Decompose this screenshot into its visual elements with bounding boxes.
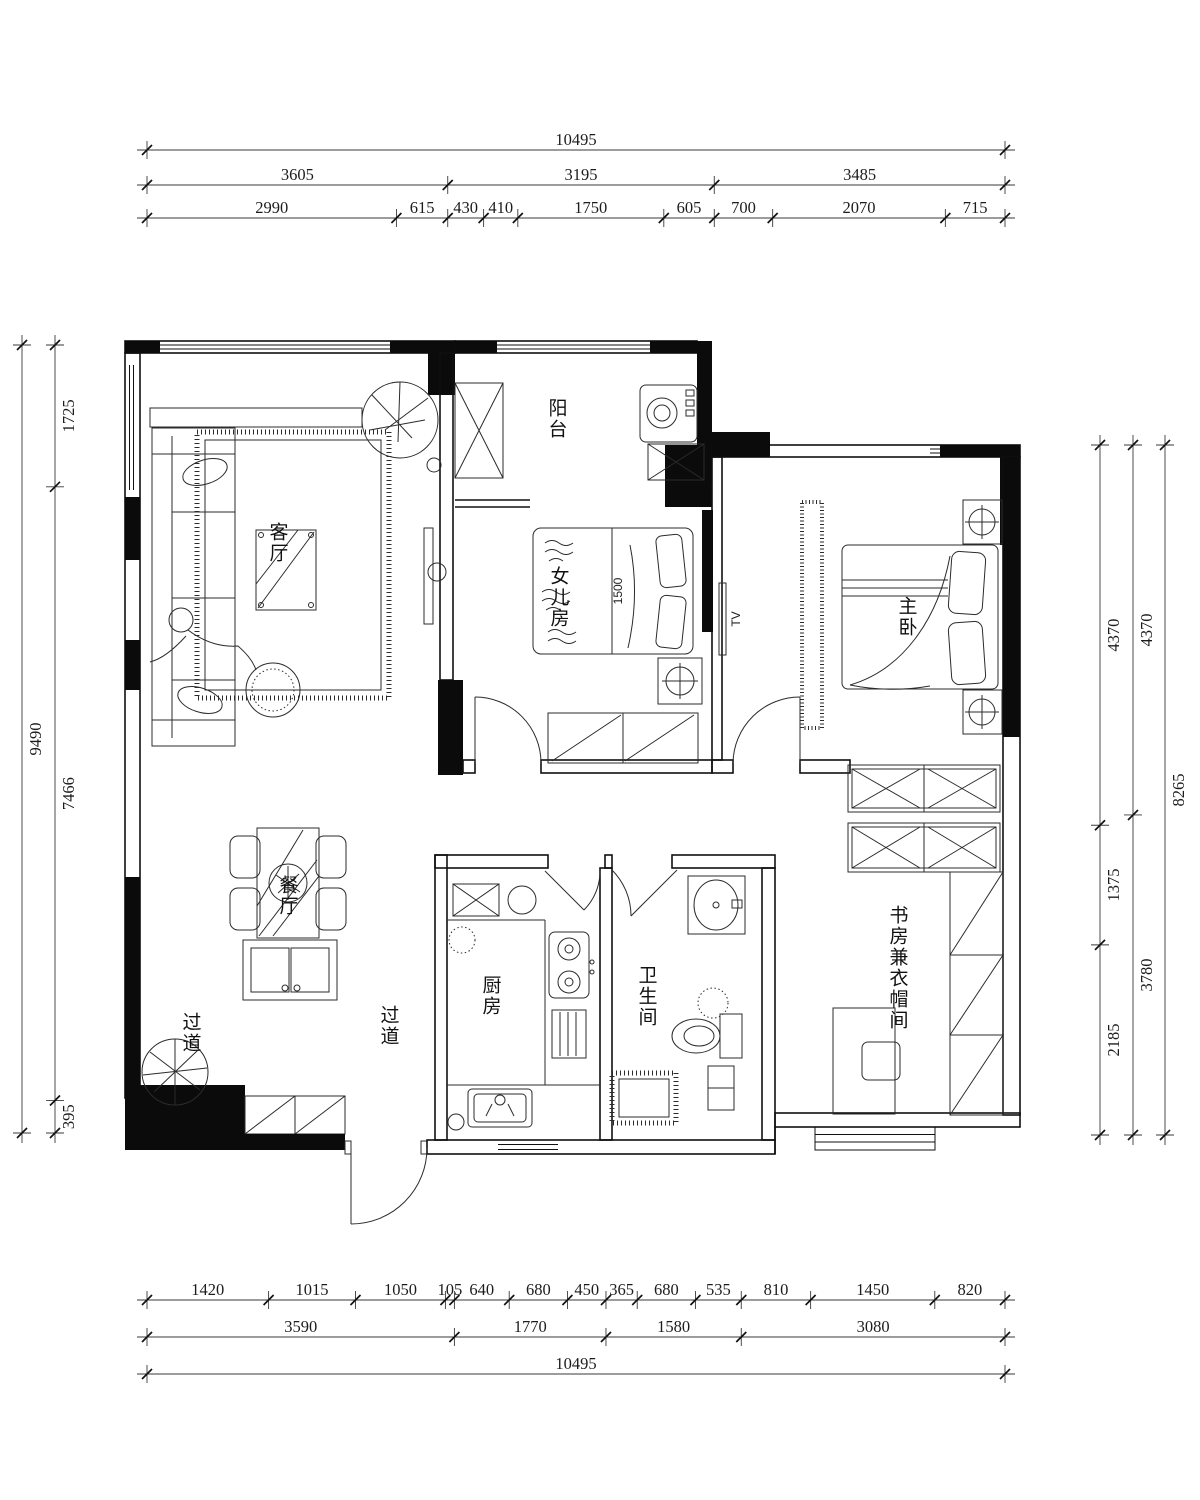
fridge (453, 884, 499, 916)
reading-person (150, 608, 256, 670)
study-furniture (833, 765, 1003, 1115)
svg-text:2990: 2990 (255, 198, 288, 217)
bath-cabinet (708, 1066, 734, 1110)
chair (230, 836, 260, 878)
tv-label: TV (729, 611, 743, 626)
shelf (150, 408, 362, 427)
room-label-living: 客厅 (267, 522, 289, 564)
svg-text:1580: 1580 (657, 1317, 690, 1336)
annotations: 1500 TV (611, 577, 743, 626)
room-label-kitchen: 厨房 (480, 975, 502, 1017)
svg-text:2070: 2070 (843, 198, 876, 217)
svg-text:1050: 1050 (384, 1280, 417, 1299)
room-label-master: 主卧 (896, 596, 917, 638)
study-right-closet (950, 872, 1003, 1115)
bathroom-furniture (612, 876, 745, 1123)
svg-text:8265: 8265 (1169, 774, 1188, 807)
living-room-furniture (150, 382, 446, 746)
room-label-balcony: 阳台 (546, 398, 567, 440)
svg-text:7466: 7466 (59, 777, 78, 810)
doors (351, 697, 800, 1224)
svg-text:9490: 9490 (26, 723, 45, 756)
svg-text:4370: 4370 (1104, 619, 1123, 652)
kitchen-door (545, 871, 600, 910)
svg-text:715: 715 (963, 198, 988, 217)
bath-sink (688, 876, 745, 934)
room-label-corridor-1: 过道 (180, 1012, 202, 1054)
shower (612, 1073, 676, 1123)
svg-text:820: 820 (958, 1280, 983, 1299)
room-label-corridor-2: 过道 (378, 1005, 400, 1047)
kitchen-sink (468, 1089, 532, 1127)
dim-top-total: 10495 (137, 130, 1015, 159)
master-nightstand-top (963, 500, 1002, 544)
svg-text:410: 410 (488, 198, 513, 217)
sideboard (243, 940, 337, 1000)
study-wardrobe-row1 (848, 765, 1000, 812)
master-nightstand-bottom (963, 690, 1002, 734)
chair (316, 888, 346, 930)
dim-left-inner: 17257466395 (46, 335, 78, 1143)
dim-right-inner: 437013752185 (1091, 435, 1123, 1145)
kitchen-furniture (447, 884, 600, 1130)
svg-text:680: 680 (654, 1280, 679, 1299)
svg-text:430: 430 (453, 198, 478, 217)
daughter-closet (548, 713, 698, 763)
svg-text:395: 395 (59, 1104, 78, 1129)
study-wardrobe-row2 (848, 823, 1000, 872)
svg-text:3195: 3195 (565, 165, 598, 184)
washing-machine (640, 385, 697, 442)
svg-text:3605: 3605 (281, 165, 314, 184)
room-label-dining: 餐厅 (277, 875, 299, 917)
toilet (672, 1014, 742, 1058)
svg-text:105: 105 (438, 1280, 463, 1299)
svg-text:1725: 1725 (59, 399, 78, 432)
dim-bottom-total: 10495 (137, 1354, 1015, 1383)
svg-text:10495: 10495 (555, 130, 596, 149)
svg-text:450: 450 (574, 1280, 599, 1299)
dim-right-outer: 8265 (1156, 435, 1188, 1145)
entrance-door (351, 1148, 427, 1224)
daughter-room-door (475, 697, 541, 763)
bed-width-label: 1500 (611, 577, 625, 604)
svg-text:605: 605 (677, 198, 702, 217)
room-label-bathroom: 卫生间 (636, 965, 658, 1028)
dim-bottom-detail: 1420101510501056406804503656805358101450… (137, 1280, 1015, 1309)
floor-plan-drawing: 客厅 阳台 女儿房 主卧 餐厅 过道 过道 厨房 卫生间 书房兼衣帽间 1500… (0, 0, 1200, 1500)
svg-text:1770: 1770 (514, 1317, 547, 1336)
svg-text:1375: 1375 (1104, 869, 1123, 902)
master-room-door (733, 697, 800, 763)
svg-text:3780: 3780 (1137, 958, 1156, 991)
svg-text:640: 640 (469, 1280, 494, 1299)
dim-left-outer: 9490 (13, 335, 45, 1143)
svg-text:3080: 3080 (857, 1317, 890, 1336)
dim-right-mid: 43703780 (1124, 435, 1156, 1145)
vent (552, 1010, 586, 1058)
svg-text:4370: 4370 (1137, 613, 1156, 646)
svg-text:810: 810 (764, 1280, 789, 1299)
dim-top-mid: 360531953485 (137, 165, 1015, 194)
svg-text:1420: 1420 (191, 1280, 224, 1299)
room-label-daughter: 女儿房 (548, 566, 570, 629)
master-bed (842, 545, 998, 689)
svg-text:1750: 1750 (574, 198, 607, 217)
plant-living (362, 382, 438, 458)
wall-light (427, 458, 441, 472)
chair (230, 888, 260, 930)
chair (316, 836, 346, 878)
drain (448, 1114, 464, 1130)
fur-rug (802, 502, 822, 728)
balcony-cabinet-left (455, 383, 503, 478)
microwave (508, 886, 536, 914)
svg-text:535: 535 (706, 1280, 731, 1299)
svg-text:10495: 10495 (555, 1354, 596, 1373)
floor-drain (449, 927, 475, 953)
svg-text:680: 680 (526, 1280, 551, 1299)
svg-text:700: 700 (731, 198, 756, 217)
dim-top-detail: 299061543041017506057002070715 (137, 198, 1015, 227)
svg-text:3485: 3485 (843, 165, 876, 184)
wall-light (428, 563, 446, 581)
svg-text:1450: 1450 (856, 1280, 889, 1299)
daughter-nightstand (658, 658, 702, 704)
dining-furniture (142, 828, 346, 1105)
bathroom-door (612, 870, 677, 916)
svg-text:3590: 3590 (284, 1317, 317, 1336)
dim-bottom-mid: 3590177015803080 (137, 1317, 1015, 1346)
master-room-furniture (719, 500, 1002, 734)
daughter-room-furniture (533, 528, 702, 763)
svg-text:1015: 1015 (296, 1280, 329, 1299)
room-label-study: 书房兼衣帽间 (887, 905, 909, 1031)
svg-text:2185: 2185 (1104, 1023, 1123, 1056)
stove (549, 932, 594, 998)
svg-text:615: 615 (410, 198, 435, 217)
floor-plan-page: 客厅 阳台 女儿房 主卧 餐厅 过道 过道 厨房 卫生间 书房兼衣帽间 1500… (0, 0, 1200, 1500)
svg-text:365: 365 (609, 1280, 634, 1299)
